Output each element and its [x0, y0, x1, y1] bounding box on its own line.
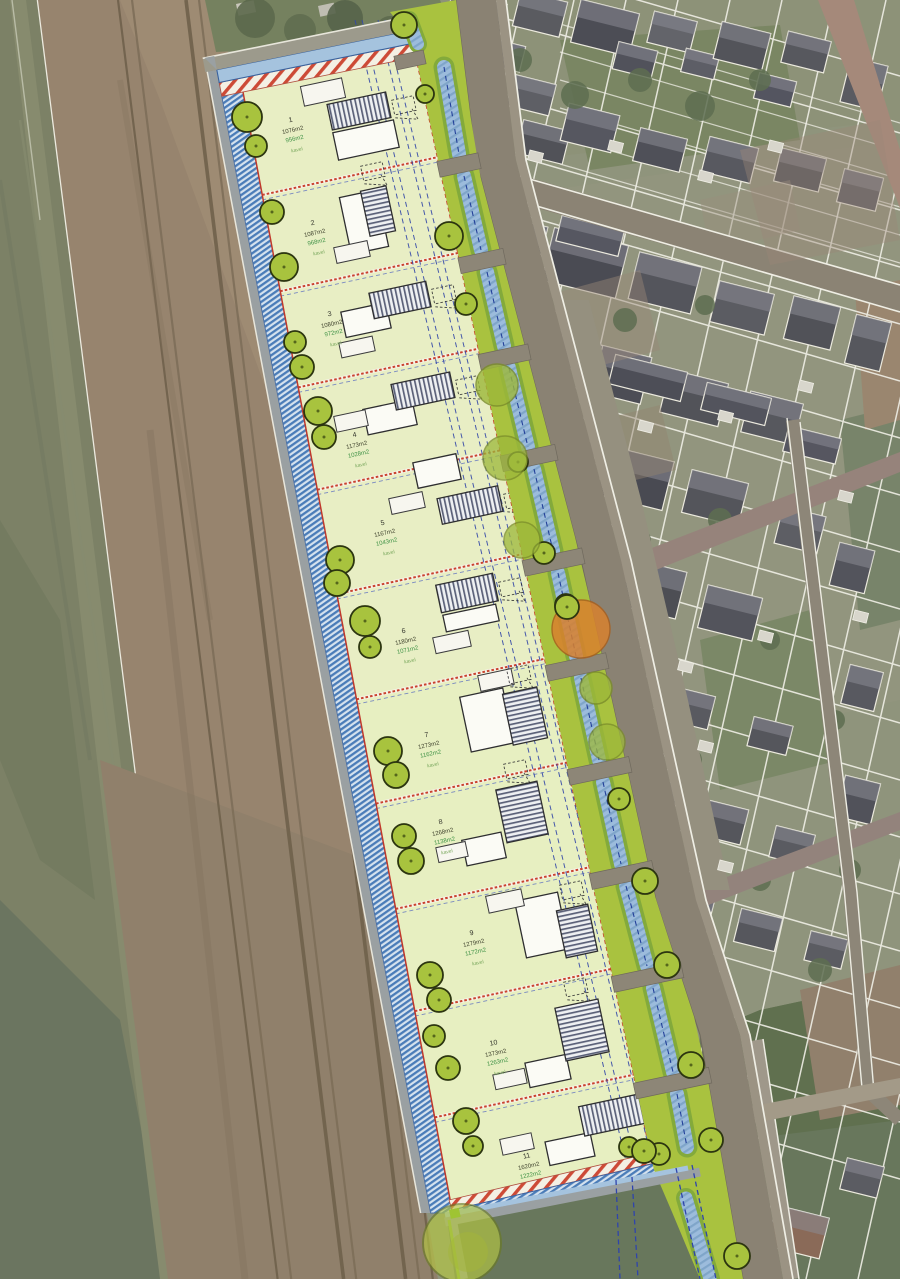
svg-text:11: 11 [522, 1152, 531, 1160]
